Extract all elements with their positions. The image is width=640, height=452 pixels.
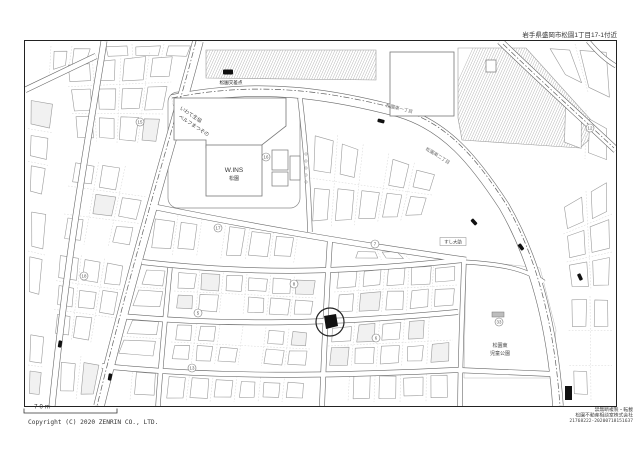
- building-outline: [353, 376, 370, 399]
- copyright-text: Copyright (C) 2020 ZENRIN CO., LTD.: [28, 419, 158, 426]
- building-outline: [61, 362, 76, 391]
- building-outline: [152, 219, 175, 249]
- building-outline: [122, 88, 143, 109]
- building-outline: [248, 278, 267, 292]
- block-number-label: 13: [190, 366, 195, 371]
- building-outline: [93, 194, 116, 216]
- map-label-park-name-2: 児童公園: [490, 350, 510, 357]
- building-outline: [198, 326, 216, 341]
- building-outline: [226, 275, 243, 291]
- building-outline: [286, 382, 303, 398]
- building-outline: [338, 294, 354, 312]
- hatch-line: [615, 48, 640, 148]
- building-outline: [190, 378, 209, 399]
- hatch-line: [623, 48, 640, 148]
- block-number-label: 17: [216, 226, 221, 231]
- building-outline: [106, 46, 128, 56]
- footer-no-copy-notice: 禁無断複製・転載: [595, 406, 634, 413]
- building-outline: [295, 280, 315, 294]
- building-outline: [113, 227, 133, 245]
- building-outline: [196, 345, 213, 361]
- building-outline: [408, 320, 424, 339]
- building-outline: [407, 346, 423, 362]
- building-outline: [177, 295, 193, 309]
- hatch-line: [626, 48, 640, 148]
- map-label-wins-line2: 松園: [229, 175, 239, 182]
- building-outline: [355, 347, 374, 363]
- map-label-park-name-1: 松園東: [492, 342, 507, 349]
- building-outline: [410, 289, 428, 309]
- building-outline: [594, 300, 608, 327]
- shop-building: [272, 172, 288, 186]
- building-outline: [119, 340, 156, 356]
- building-outline: [263, 383, 280, 398]
- zenrin-map-print-page: 151617187851333126松園交差点いわて生協ベルフまつぞのW.INS…: [0, 0, 640, 452]
- building-outline: [313, 188, 330, 221]
- building-outline: [172, 346, 190, 360]
- building-outline: [119, 117, 138, 141]
- building-outline: [123, 57, 146, 81]
- building-outline: [431, 343, 449, 363]
- building-outline: [288, 351, 307, 365]
- building-outline: [291, 331, 307, 345]
- building-outline: [593, 258, 610, 286]
- building-outline: [98, 89, 116, 110]
- scale-bar-label: 70m: [34, 405, 52, 411]
- building-outline: [356, 252, 378, 259]
- building-outline: [269, 298, 290, 315]
- building-outline: [314, 136, 333, 173]
- building-outline: [166, 46, 190, 56]
- building-outline: [382, 322, 401, 340]
- footer-license-number: 21768222-20200718151637: [569, 418, 633, 424]
- building-outline: [431, 375, 448, 398]
- map-label-wins-line1: W.INS: [225, 167, 244, 174]
- hatch-line: [618, 48, 640, 148]
- shop-building: [272, 150, 288, 170]
- building-outline: [386, 291, 404, 310]
- building-outline: [135, 372, 156, 395]
- building-outline: [337, 271, 357, 289]
- header-address: 岩手県盛岡市松園1丁目17-1付近: [522, 30, 617, 39]
- building-outline: [294, 300, 313, 314]
- map-label-intersection-name: 松園交差点: [220, 79, 243, 86]
- parking-structure: [486, 60, 496, 72]
- building-outline: [387, 268, 405, 286]
- building-outline: [363, 270, 381, 287]
- block-number-label: 16: [264, 155, 269, 160]
- block-number-label: 18: [82, 274, 87, 279]
- playground-equipment-icon: [492, 312, 504, 317]
- building-outline: [273, 278, 291, 293]
- building-outline: [73, 316, 92, 340]
- building-outline: [99, 118, 114, 139]
- building-outline: [72, 89, 92, 111]
- building-outline: [214, 380, 233, 397]
- building-outline: [248, 297, 264, 313]
- footer-licensee-name: 松園不動産相談室株式会社: [575, 412, 633, 419]
- map-content-layer: 151617187851333126松園交差点いわて生協ベルフまつぞのW.INS…: [24, 40, 640, 407]
- building-outline: [167, 377, 186, 399]
- block-number-label: 33: [497, 320, 502, 325]
- building-outline: [176, 325, 192, 341]
- building-outline: [218, 347, 238, 362]
- building-outline: [572, 300, 587, 327]
- hatch-line: [620, 48, 640, 148]
- hatch-line: [628, 48, 640, 148]
- building-outline: [248, 232, 270, 257]
- building-outline: [330, 347, 350, 365]
- building-outline: [201, 273, 220, 291]
- building-outline: [31, 101, 53, 129]
- building-outline: [136, 46, 161, 56]
- building-outline: [411, 267, 431, 286]
- shop-building: [290, 156, 300, 180]
- building-outline: [150, 57, 172, 77]
- building-outline: [30, 136, 48, 160]
- building-outline: [239, 382, 255, 398]
- building-outline: [574, 371, 588, 395]
- building-outline: [178, 222, 197, 249]
- building-outline: [268, 330, 285, 344]
- block-number-label: 12: [588, 126, 593, 131]
- building-outline: [199, 295, 219, 312]
- building-outline: [380, 346, 399, 365]
- building-outline: [274, 236, 293, 256]
- building-outline: [436, 266, 455, 282]
- print-license-block: 禁無断複製・転載 松園不動産相談室株式会社 21768222-202007181…: [569, 406, 633, 424]
- building-outline: [29, 371, 41, 395]
- building-outline: [335, 189, 354, 221]
- block-number-label: 15: [138, 120, 143, 125]
- building-outline: [104, 263, 122, 285]
- map-label-sushi-daisuke: すし大助: [444, 239, 462, 246]
- building-outline: [264, 349, 284, 365]
- building-outline: [178, 273, 197, 289]
- map-canvas: 151617187851333126松園交差点いわて生協ベルフまつぞのW.INS…: [0, 0, 640, 452]
- building-outline: [30, 335, 44, 363]
- building-outline: [78, 290, 96, 308]
- building-outline: [435, 289, 455, 307]
- black-filled-building: [565, 386, 572, 400]
- traffic-signal-icon: [223, 70, 233, 75]
- building-outline: [359, 292, 381, 312]
- building-outline: [404, 377, 424, 396]
- building-outline: [127, 320, 159, 335]
- building-outline: [379, 376, 396, 399]
